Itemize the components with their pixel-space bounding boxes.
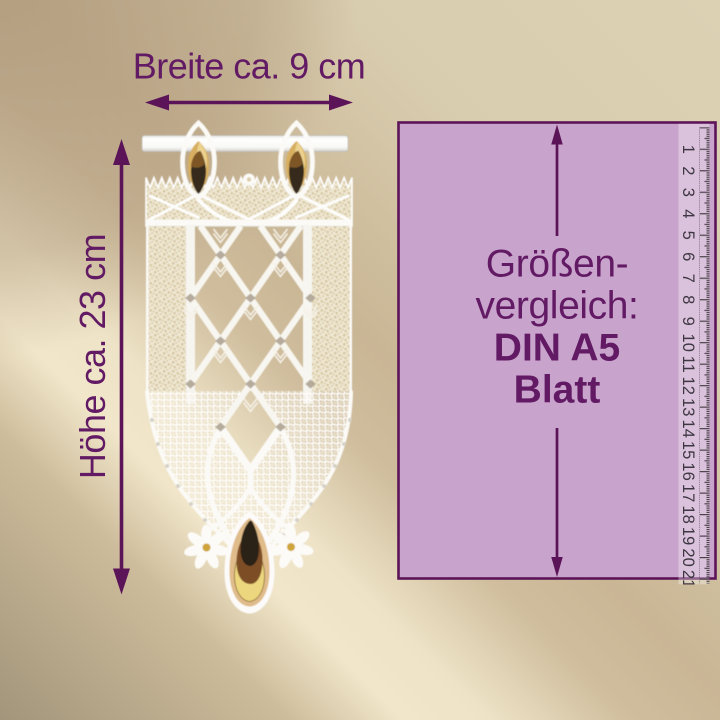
svg-text:8: 8	[679, 295, 697, 304]
svg-text:13: 13	[679, 398, 697, 416]
svg-text:Breite ca. 9 cm: Breite ca. 9 cm	[133, 46, 366, 87]
svg-text:4: 4	[679, 209, 697, 218]
svg-text:3: 3	[679, 188, 697, 197]
svg-text:Blatt: Blatt	[514, 369, 601, 412]
svg-text:19: 19	[679, 527, 697, 545]
svg-text:17: 17	[679, 484, 697, 502]
svg-text:12: 12	[679, 377, 697, 395]
svg-text:1: 1	[679, 145, 697, 154]
svg-text:15: 15	[679, 441, 697, 459]
svg-text:11: 11	[679, 356, 697, 373]
svg-text:DIN A5: DIN A5	[494, 327, 620, 370]
svg-text:6: 6	[679, 252, 697, 261]
svg-text:14: 14	[679, 420, 697, 438]
svg-text:9: 9	[679, 317, 697, 326]
svg-text:Höhe ca. 23 cm: Höhe ca. 23 cm	[72, 234, 113, 479]
svg-text:10: 10	[679, 334, 697, 352]
svg-text:18: 18	[679, 505, 697, 523]
svg-text:16: 16	[679, 462, 697, 480]
svg-text:20: 20	[679, 548, 697, 566]
svg-text:7: 7	[679, 274, 697, 283]
svg-text:Größen-: Größen-	[486, 243, 628, 286]
svg-text:vergleich:: vergleich:	[476, 285, 639, 328]
svg-text:2: 2	[679, 166, 697, 175]
svg-text:5: 5	[679, 231, 697, 240]
